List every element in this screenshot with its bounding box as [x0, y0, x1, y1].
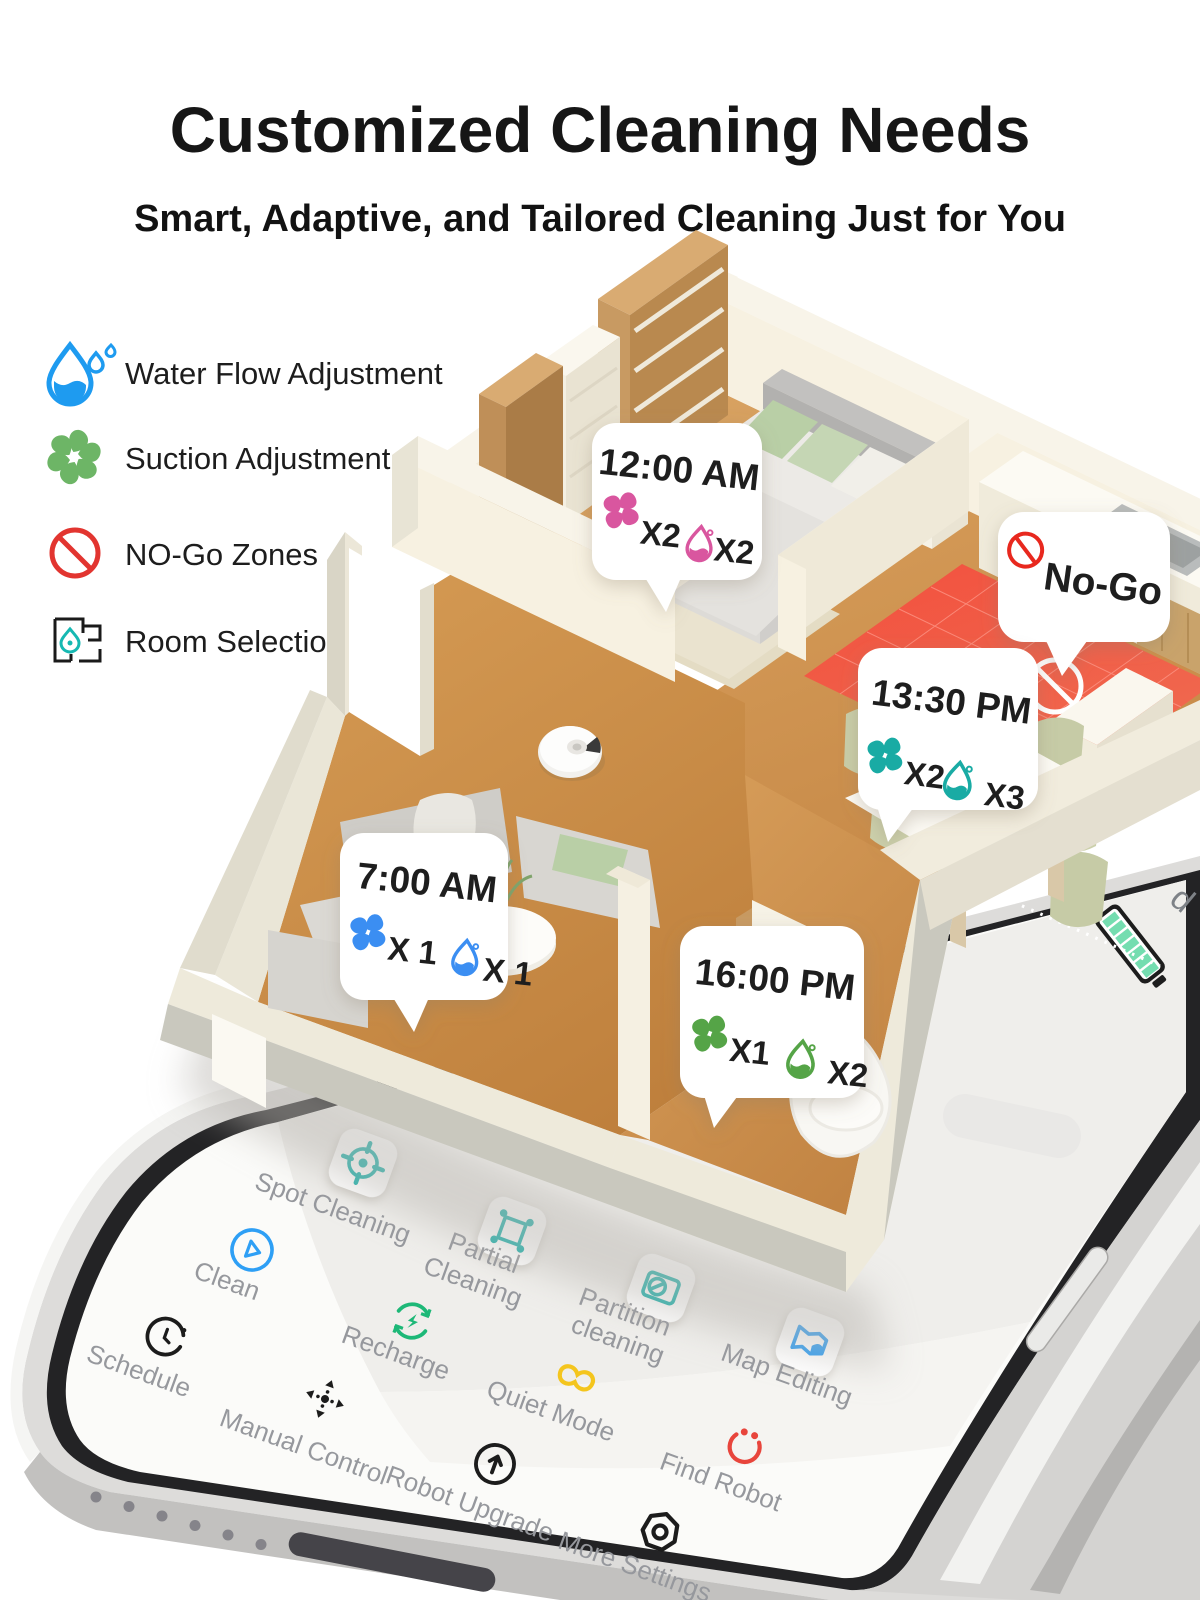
svg-text:Smart, Adaptive, and Tailored: Smart, Adaptive, and Tailored Cleaning J…	[134, 198, 1066, 240]
svg-text:Water Flow Adjustment: Water Flow Adjustment	[125, 356, 443, 391]
svg-text:NO-Go Zones: NO-Go Zones	[125, 537, 318, 572]
svg-text:X2: X2	[902, 754, 947, 796]
svg-text:X2: X2	[639, 514, 683, 555]
svg-text:X 1: X 1	[481, 951, 534, 993]
svg-text:X2: X2	[712, 530, 756, 571]
svg-text:Suction Adjustment: Suction Adjustment	[125, 441, 391, 476]
svg-text:Customized Cleaning Needs: Customized Cleaning Needs	[170, 94, 1031, 166]
svg-text:X2: X2	[826, 1053, 870, 1094]
svg-text:X 1: X 1	[386, 930, 439, 972]
svg-text:X3: X3	[982, 775, 1027, 817]
svg-text:X1: X1	[728, 1031, 772, 1072]
svg-text:Room Selection: Room Selection	[125, 624, 344, 659]
